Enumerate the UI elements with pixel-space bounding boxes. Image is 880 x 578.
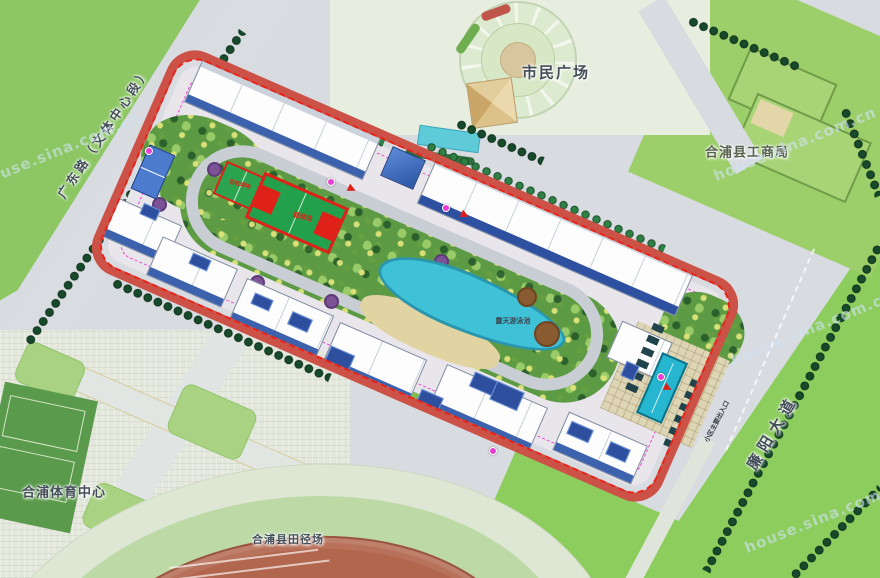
entrance-marker	[327, 178, 335, 186]
athletics-field-label: 合浦县田径场	[252, 531, 324, 547]
open-air-pool-label: 露天游泳池	[496, 316, 531, 326]
entrance-marker	[145, 147, 153, 155]
entrance-marker	[489, 447, 497, 455]
entrance-marker	[657, 373, 665, 381]
court-outline	[2, 395, 86, 452]
site-plan-canvas: 市民广场 合浦县工商局 广东路（文体中心段） 廉阳大道 合浦体育中心 合浦县田径…	[0, 0, 880, 578]
sports-center-label: 合浦体育中心	[22, 482, 106, 501]
entrance-marker	[442, 204, 450, 212]
citizens-square-label: 市民广场	[522, 62, 590, 83]
plaza-pavilion-roof	[466, 77, 518, 129]
